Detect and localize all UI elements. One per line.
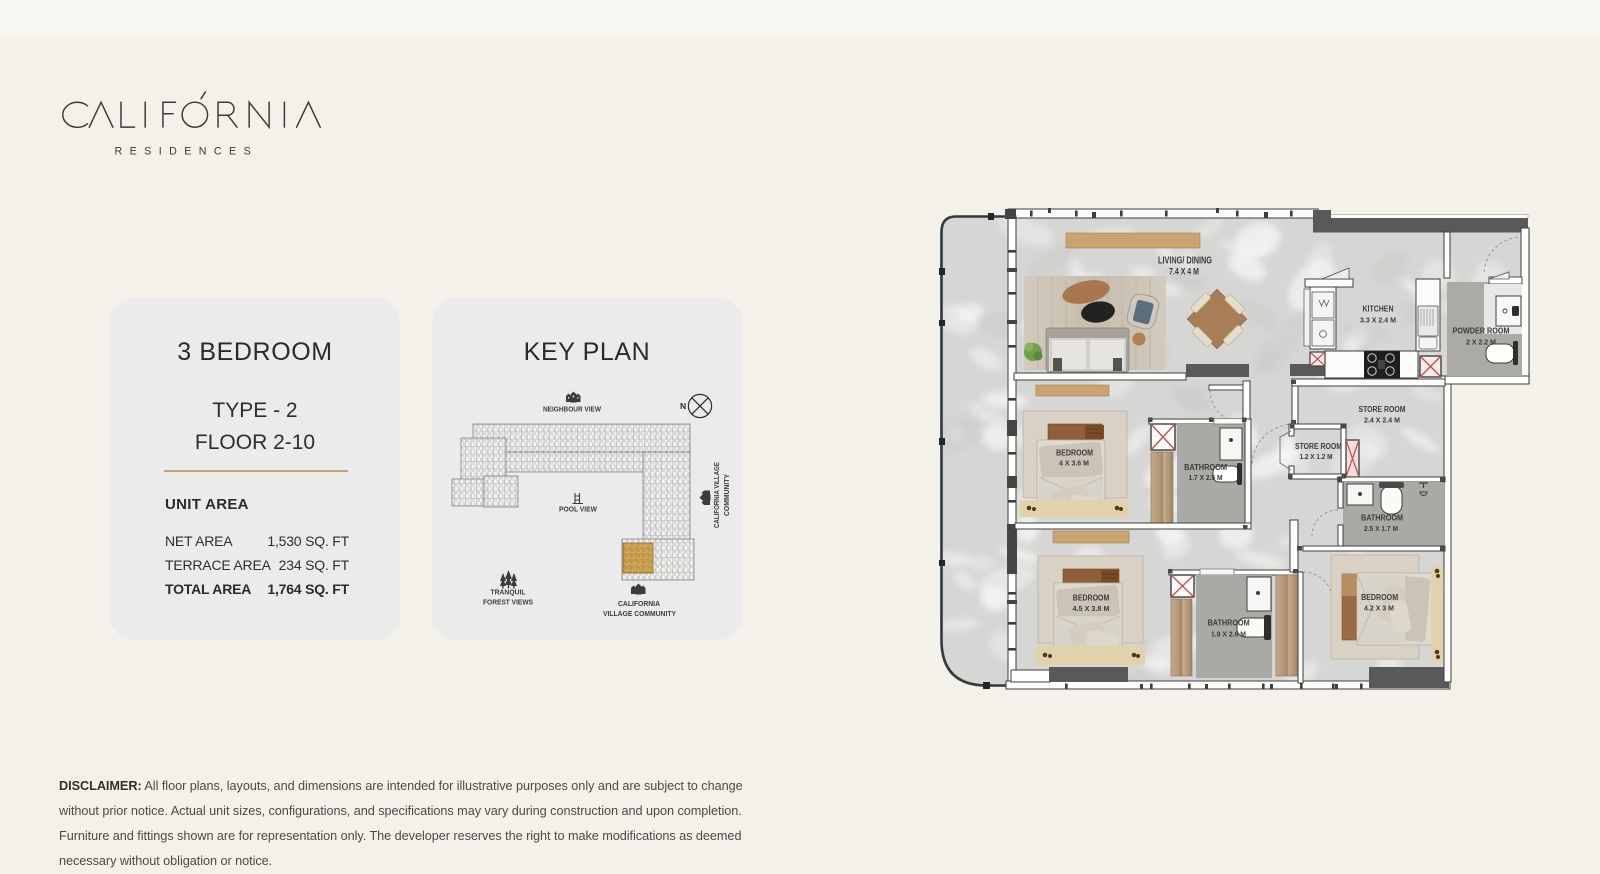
svg-text:TRANQUIL: TRANQUIL (491, 588, 526, 597)
svg-text:2.4 X 2.4 M: 2.4 X 2.4 M (1364, 416, 1400, 425)
svg-text:BATHROOM: BATHROOM (1184, 463, 1227, 472)
svg-text:NEIGHBOUR VIEW: NEIGHBOUR VIEW (543, 405, 602, 414)
svg-text:3.3 X 2.4 M: 3.3 X 2.4 M (1360, 316, 1396, 325)
svg-text:CALIFORNIA VILLAGE: CALIFORNIA VILLAGE (712, 462, 721, 528)
svg-text:N: N (680, 401, 686, 411)
svg-text:KITCHEN: KITCHEN (1363, 305, 1394, 314)
svg-text:4 X 3.6 M: 4 X 3.6 M (1059, 459, 1089, 468)
svg-text:LIVING/ DINING: LIVING/ DINING (1158, 255, 1212, 266)
svg-text:RESIDENCES: RESIDENCES (114, 146, 258, 158)
svg-text:BEDROOM: BEDROOM (1056, 449, 1093, 458)
svg-text:1.7 X 2.5 M: 1.7 X 2.5 M (1189, 473, 1223, 482)
svg-text:POOL VIEW: POOL VIEW (559, 505, 598, 514)
svg-text:4.2 X 3 M: 4.2 X 3 M (1364, 604, 1394, 613)
svg-text:CALIFORNIA: CALIFORNIA (618, 599, 661, 608)
svg-text:FOREST VIEWS: FOREST VIEWS (483, 598, 533, 607)
svg-text:POWDER ROOM: POWDER ROOM (1453, 327, 1510, 336)
svg-text:2 X 2.2 M: 2 X 2.2 M (1466, 338, 1496, 347)
svg-text:VILLAGE COMMUNITY: VILLAGE COMMUNITY (603, 609, 676, 618)
svg-text:COMMUNITY: COMMUNITY (722, 474, 731, 516)
svg-text:BEDROOM: BEDROOM (1361, 593, 1398, 602)
svg-text:STORE ROOM: STORE ROOM (1295, 442, 1342, 451)
svg-text:BEDROOM: BEDROOM (1073, 594, 1110, 603)
svg-text:1.9 X 2.6 M: 1.9 X 2.6 M (1211, 630, 1246, 639)
svg-text:BATHROOM: BATHROOM (1208, 619, 1250, 628)
svg-text:1.2 X 1.2 M: 1.2 X 1.2 M (1300, 452, 1333, 461)
svg-text:4.5 X 3.8 M: 4.5 X 3.8 M (1073, 604, 1110, 613)
svg-text:7.4 X 4 M: 7.4 X 4 M (1169, 267, 1199, 278)
svg-text:STORE ROOM: STORE ROOM (1359, 405, 1406, 414)
svg-text:BATHROOM: BATHROOM (1361, 514, 1403, 523)
svg-text:2.5 X 1.7 M: 2.5 X 1.7 M (1364, 524, 1398, 533)
